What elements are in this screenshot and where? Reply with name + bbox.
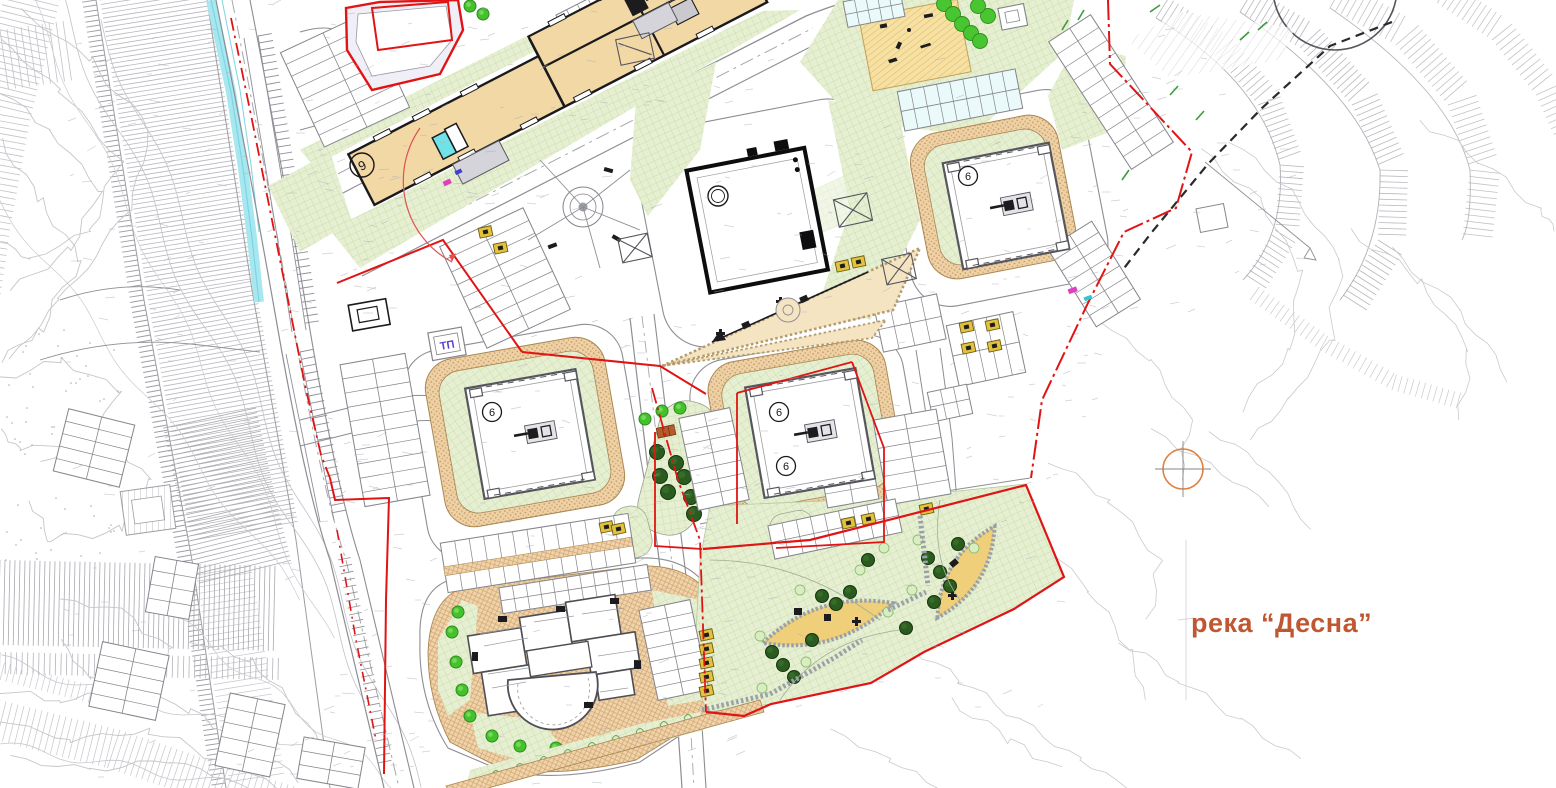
svg-text:6: 6: [776, 407, 782, 419]
svg-text:река “Десна”: река “Десна”: [1191, 608, 1372, 638]
svg-text:ТП: ТП: [439, 339, 456, 353]
svg-text:6: 6: [783, 461, 789, 473]
svg-text:6: 6: [489, 407, 495, 419]
svg-text:6: 6: [965, 171, 971, 183]
